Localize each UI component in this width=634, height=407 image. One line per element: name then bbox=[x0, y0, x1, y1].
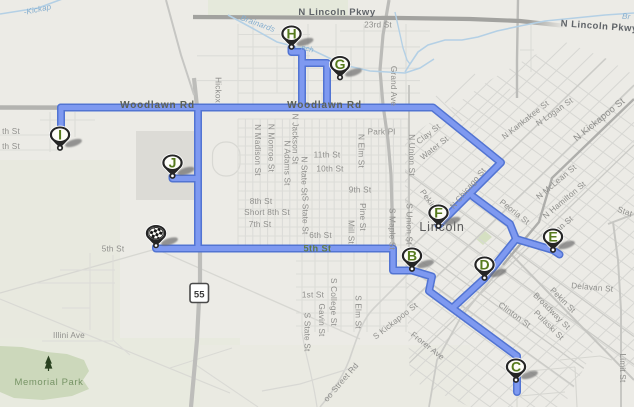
svg-text:S College St: S College St bbox=[329, 278, 338, 326]
svg-text:Limit St: Limit St bbox=[618, 354, 627, 383]
svg-text:10th St: 10th St bbox=[316, 165, 344, 174]
svg-text:Grand Ave: Grand Ave bbox=[389, 66, 398, 107]
svg-text:N Lincoln Pkwy: N Lincoln Pkwy bbox=[298, 7, 375, 18]
svg-text:1st St: 1st St bbox=[302, 291, 325, 300]
svg-text:N Madison St: N Madison St bbox=[253, 124, 262, 176]
svg-text:N Adams St: N Adams St bbox=[283, 140, 292, 186]
svg-text:H: H bbox=[286, 26, 296, 42]
svg-text:S Elm St: S Elm St bbox=[354, 295, 363, 329]
svg-text:5th St: 5th St bbox=[304, 244, 332, 254]
svg-text:I: I bbox=[58, 127, 62, 143]
svg-text:N Monroe St: N Monroe St bbox=[267, 124, 276, 173]
svg-text:Hickox: Hickox bbox=[214, 77, 223, 103]
svg-text:B: B bbox=[407, 248, 417, 264]
svg-text:th St: th St bbox=[2, 142, 20, 151]
svg-text:S Union St: S Union St bbox=[405, 203, 414, 245]
svg-text:N Jackson St: N Jackson St bbox=[291, 114, 300, 165]
svg-text:7th St: 7th St bbox=[249, 220, 272, 229]
svg-text:S State St: S State St bbox=[301, 196, 310, 235]
svg-text:Woodlawn Rd: Woodlawn Rd bbox=[287, 100, 362, 111]
svg-text:11th St: 11th St bbox=[314, 151, 341, 160]
svg-text:Woodlawn Rd: Woodlawn Rd bbox=[120, 100, 195, 111]
svg-text:Park Pl: Park Pl bbox=[368, 128, 396, 137]
svg-text:F: F bbox=[434, 205, 443, 221]
svg-text:G: G bbox=[335, 56, 346, 72]
svg-text:8th St: 8th St bbox=[250, 197, 273, 206]
svg-text:S State St: S State St bbox=[303, 313, 312, 352]
svg-text:55: 55 bbox=[194, 290, 205, 301]
svg-text:Short 8th St: Short 8th St bbox=[244, 208, 290, 217]
svg-text:Illini Ave: Illini Ave bbox=[53, 331, 85, 340]
svg-text:5th St: 5th St bbox=[102, 245, 125, 254]
svg-text:Br: Br bbox=[622, 12, 631, 22]
svg-text:Mill St: Mill St bbox=[347, 220, 356, 244]
svg-text:C: C bbox=[511, 359, 521, 375]
svg-text:D: D bbox=[479, 257, 489, 273]
svg-text:N State St: N State St bbox=[300, 156, 309, 196]
svg-text:th St: th St bbox=[2, 127, 20, 136]
svg-text:N Elm St: N Elm St bbox=[357, 134, 366, 168]
svg-text:6th St: 6th St bbox=[309, 231, 332, 240]
svg-text:J: J bbox=[169, 155, 177, 171]
svg-text:9th St: 9th St bbox=[349, 186, 372, 195]
svg-text:Gavin St: Gavin St bbox=[317, 304, 326, 338]
svg-text:E: E bbox=[548, 229, 557, 245]
svg-text:S Maple St: S Maple St bbox=[388, 208, 397, 251]
svg-text:23rd St: 23rd St bbox=[364, 21, 392, 30]
svg-text:Pine St: Pine St bbox=[358, 203, 367, 231]
svg-text:Memorial Park: Memorial Park bbox=[14, 377, 83, 388]
